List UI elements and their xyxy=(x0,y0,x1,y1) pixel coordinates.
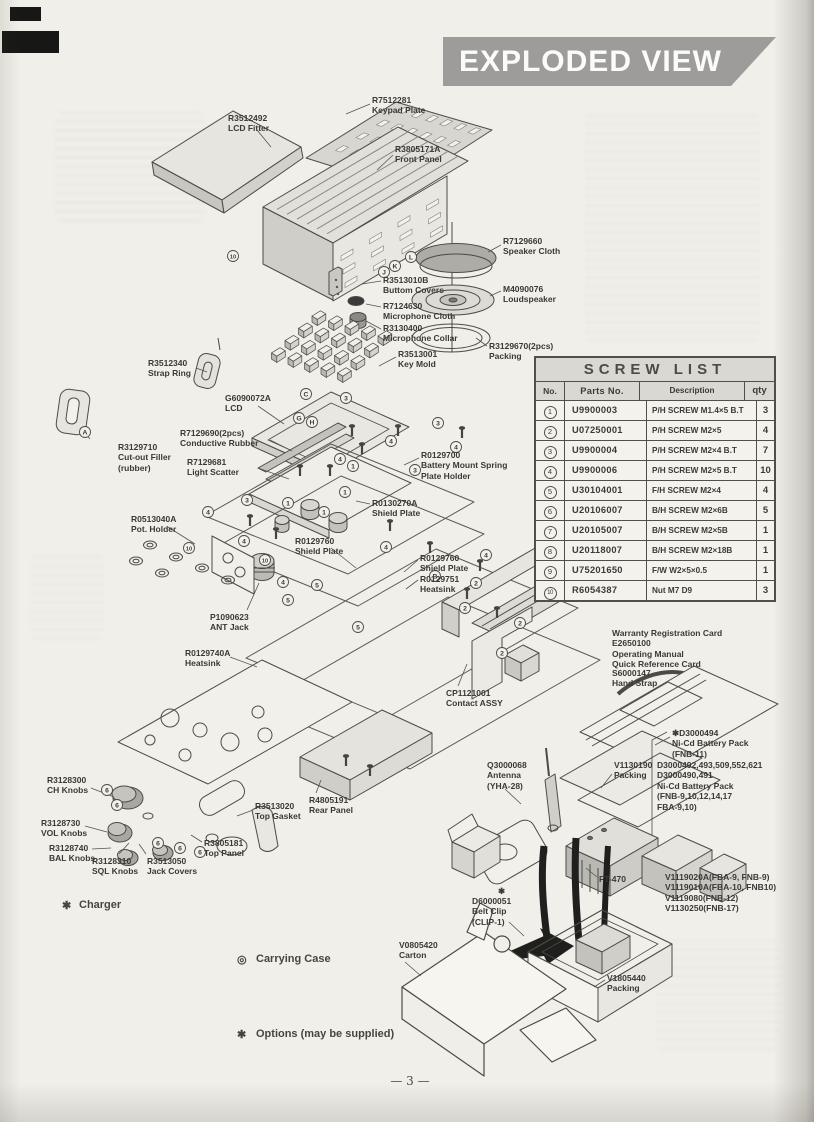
packing-tray-drawing xyxy=(528,910,672,1022)
svg-text:4: 4 xyxy=(281,579,285,586)
screw-row: 9U75201650F/W W2×5×0.51 xyxy=(536,561,774,581)
carrying-case-title: Carrying Case xyxy=(256,953,331,965)
knobs-drawing xyxy=(108,786,173,866)
microphone-cloth-drawing xyxy=(348,297,364,306)
column-description: Description xyxy=(640,382,745,400)
svg-text:2: 2 xyxy=(518,620,522,627)
charger-section: ✱ Charger xyxy=(62,899,121,915)
charger-bullet: ✱ xyxy=(62,899,71,912)
svg-text:10: 10 xyxy=(230,254,236,260)
svg-text:2: 2 xyxy=(463,605,467,612)
screw-list-title: SCREW LIST xyxy=(536,358,774,382)
rear-panel-drawing xyxy=(300,710,432,800)
svg-text:4: 4 xyxy=(206,509,210,516)
antenna-drawing xyxy=(545,748,561,832)
svg-text:6: 6 xyxy=(198,849,202,856)
carrying-case-bullet: ◎ xyxy=(237,953,247,966)
options-bullet: ✱ xyxy=(237,1028,246,1041)
screw-row: 1U9900003P/H SCREW M1.4×5 B.T3 xyxy=(536,401,774,421)
options-text: Options (may be supplied) xyxy=(256,1028,394,1040)
svg-text:G: G xyxy=(296,415,301,422)
screw-row: 8U20118007B/H SCREW M2×18B1 xyxy=(536,541,774,561)
screw-row: 3U9900004P/H SCREW M2×4 B.T7 xyxy=(536,441,774,461)
manual-page: EXPLODED VIEW xyxy=(0,0,814,1122)
carrying-case-section: ◎ Carrying Case xyxy=(237,953,331,971)
svg-text:1: 1 xyxy=(351,463,355,470)
svg-text:2: 2 xyxy=(474,580,478,587)
screw-row: 10R6054387Nut M7 D93 xyxy=(536,581,774,600)
svg-text:10: 10 xyxy=(186,546,192,552)
screw-row: 4U9900006P/H SCREW M2×5 B.T10 xyxy=(536,461,774,481)
page-number: — 3 — xyxy=(360,1074,460,1088)
svg-text:6: 6 xyxy=(105,787,109,794)
svg-text:5: 5 xyxy=(315,582,319,589)
svg-text:6: 6 xyxy=(178,845,182,852)
svg-text:6: 6 xyxy=(115,802,119,809)
svg-text:4: 4 xyxy=(454,444,458,451)
screw-table-body: 1U9900003P/H SCREW M1.4×5 B.T32U07250001… xyxy=(536,401,774,600)
svg-text:4: 4 xyxy=(242,538,246,545)
svg-text:10: 10 xyxy=(262,558,268,564)
svg-text:6: 6 xyxy=(156,840,160,847)
registration-mark xyxy=(10,7,41,21)
screw-list-table: SCREW LIST No. Parts No. Description qty… xyxy=(534,356,776,602)
screw-row: 2U07250001P/H SCREW M2×54 xyxy=(536,421,774,441)
svg-text:1: 1 xyxy=(286,500,290,507)
options-section: ✱ Options (may be supplied) xyxy=(237,1028,394,1040)
buttom-covers-drawing xyxy=(329,267,342,296)
svg-text:J: J xyxy=(382,269,386,276)
svg-text:4: 4 xyxy=(389,438,393,445)
charger-title: Charger xyxy=(79,899,121,911)
svg-text:4: 4 xyxy=(484,552,488,559)
svg-text:C: C xyxy=(304,391,309,398)
screw-row: 7U20105007B/H SCREW M2×5B1 xyxy=(536,521,774,541)
svg-text:K: K xyxy=(393,263,398,270)
screw-row: 5U30104001F/H SCREW M2×44 xyxy=(536,481,774,501)
svg-text:A: A xyxy=(83,429,88,436)
svg-text:H: H xyxy=(310,419,315,426)
svg-text:5: 5 xyxy=(286,597,290,604)
page-title: EXPLODED VIEW xyxy=(459,37,722,86)
screw-row: 6U20106007B/H SCREW M2×6B5 xyxy=(536,501,774,521)
page-title-banner: EXPLODED VIEW xyxy=(443,37,776,86)
svg-text:3: 3 xyxy=(344,395,348,402)
svg-text:3: 3 xyxy=(436,420,440,427)
column-parts-no: Parts No. xyxy=(565,382,640,400)
svg-text:3: 3 xyxy=(413,467,417,474)
svg-text:2: 2 xyxy=(500,650,504,657)
column-no: No. xyxy=(536,382,565,400)
svg-text:B: B xyxy=(433,573,438,580)
svg-text:4: 4 xyxy=(338,456,342,463)
svg-text:1: 1 xyxy=(322,509,326,516)
key-mold-drawing xyxy=(272,311,392,383)
strap-ring-drawing xyxy=(192,338,222,390)
screw-list-header: No. Parts No. Description qty xyxy=(536,382,774,401)
svg-text:L: L xyxy=(409,254,413,261)
svg-text:1: 1 xyxy=(343,489,347,496)
column-qty: qty xyxy=(745,382,774,400)
svg-text:4: 4 xyxy=(384,544,388,551)
svg-text:5: 5 xyxy=(356,624,360,631)
top-gasket-drawing xyxy=(196,777,248,818)
registration-mark xyxy=(2,31,59,53)
svg-text:3: 3 xyxy=(245,497,249,504)
